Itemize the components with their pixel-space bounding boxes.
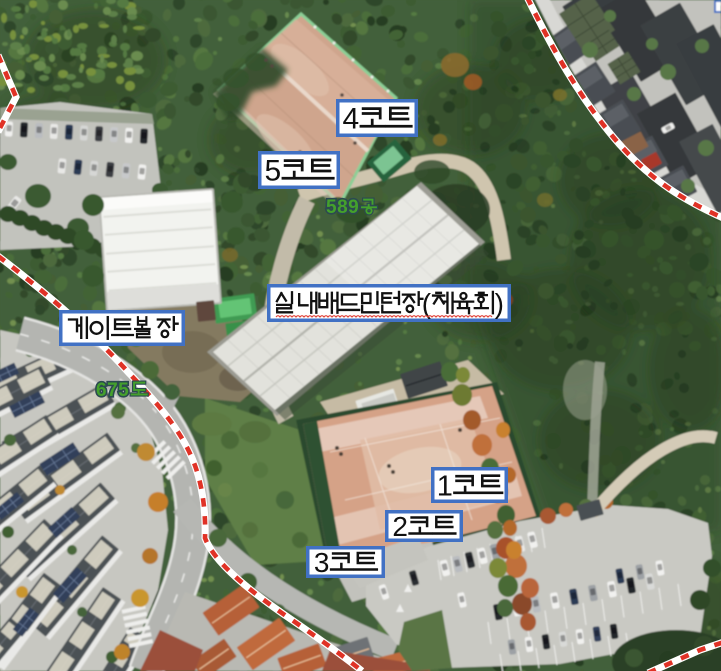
svg-text:3: 3 <box>314 547 330 578</box>
svg-text:4: 4 <box>343 103 360 136</box>
svg-text:): ) <box>495 288 504 319</box>
svg-text:675: 675 <box>96 380 129 401</box>
svg-text:2: 2 <box>392 511 408 542</box>
svg-text:(: ( <box>422 288 432 319</box>
svg-text:589: 589 <box>326 197 359 218</box>
svg-text:5: 5 <box>265 155 282 188</box>
svg-text:1: 1 <box>437 470 453 502</box>
